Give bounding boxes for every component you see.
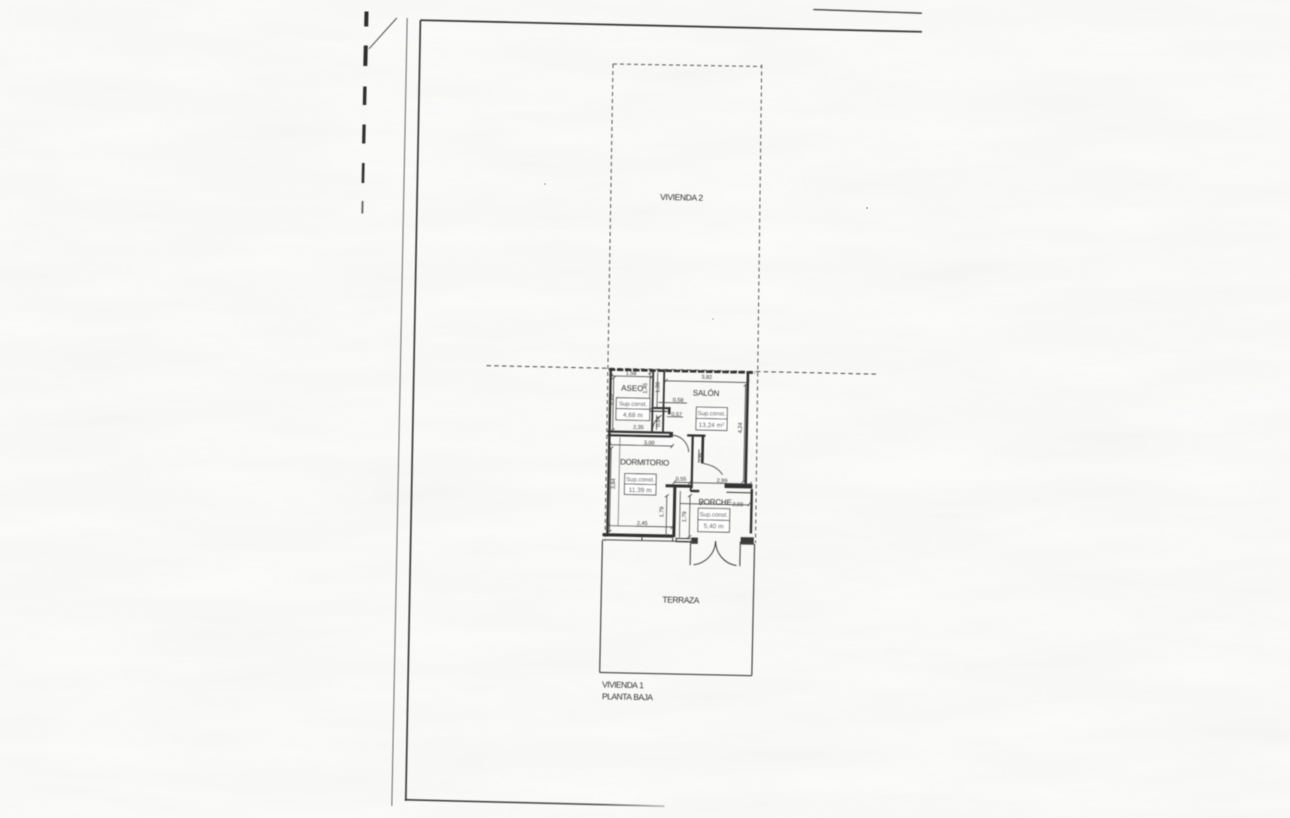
svg-text:1,38: 1,38: [655, 382, 661, 393]
svg-text:0,95: 0,95: [697, 453, 702, 462]
svg-text:2,20: 2,20: [609, 394, 615, 405]
svg-text:Sup.const.: Sup.const.: [626, 477, 655, 484]
svg-text:ASEO: ASEO: [621, 384, 643, 393]
svg-text:Sup.const.: Sup.const.: [697, 411, 726, 418]
svg-text:0,84: 0,84: [656, 416, 662, 427]
svg-text:1,58: 1,58: [626, 371, 637, 377]
svg-text:2,99: 2,99: [717, 478, 728, 484]
svg-text:Sup.const.: Sup.const.: [700, 512, 729, 519]
svg-text:4,24: 4,24: [738, 422, 744, 433]
svg-text:3,00: 3,00: [644, 440, 655, 446]
svg-text:PLANTABAJA: PLANTABAJA: [602, 691, 654, 702]
svg-text:Sup.const.: Sup.const.: [619, 402, 648, 409]
svg-text:SALÓN: SALÓN: [693, 388, 720, 398]
svg-text:13,24 m2: 13,24 m2: [699, 421, 726, 430]
svg-text:TERRAZA: TERRAZA: [662, 594, 700, 605]
svg-text:0,55: 0,55: [676, 477, 687, 483]
svg-text:3,84: 3,84: [611, 478, 617, 489]
svg-text:0,57: 0,57: [671, 412, 682, 418]
svg-text:2,45: 2,45: [637, 521, 648, 527]
svg-text:5,40 m: 5,40 m: [704, 523, 724, 530]
svg-text:2,35: 2,35: [633, 425, 644, 431]
svg-text:1,79: 1,79: [659, 507, 665, 518]
svg-text:DORMITORIO: DORMITORIO: [620, 458, 669, 468]
svg-text:4,68 m: 4,68 m: [623, 412, 643, 419]
svg-text:PORCHE: PORCHE: [698, 497, 731, 507]
svg-text:0,58: 0,58: [673, 398, 684, 404]
svg-text:11,39 m: 11,39 m: [629, 487, 652, 494]
svg-text:3,82: 3,82: [701, 375, 712, 381]
svg-text:1,45: 1,45: [643, 383, 649, 394]
svg-text:2,03: 2,03: [732, 502, 743, 508]
svg-text:1,79: 1,79: [682, 511, 688, 522]
